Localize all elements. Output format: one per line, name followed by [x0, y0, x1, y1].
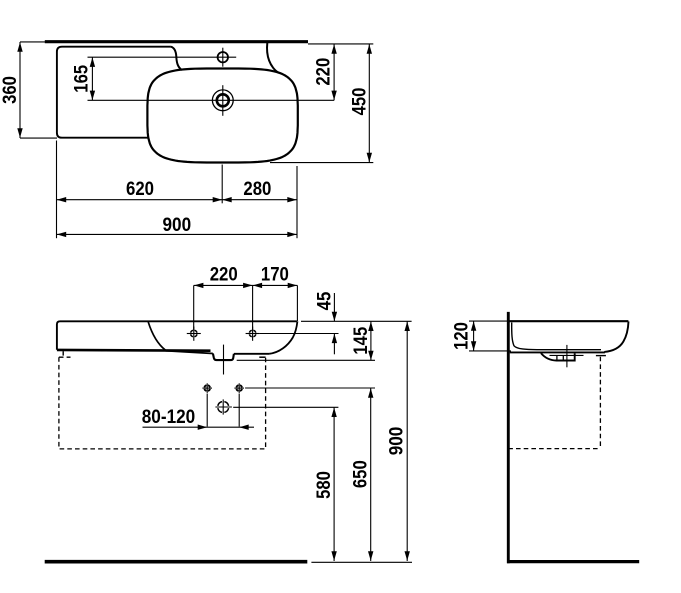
svg-text:900: 900	[386, 427, 407, 456]
svg-text:220: 220	[314, 58, 335, 86]
svg-text:45: 45	[314, 291, 335, 310]
svg-text:620: 620	[126, 179, 154, 200]
svg-text:145: 145	[351, 326, 372, 354]
svg-text:360: 360	[0, 76, 21, 104]
svg-text:170: 170	[261, 265, 289, 286]
svg-text:80-120: 80-120	[142, 407, 196, 428]
svg-text:280: 280	[243, 179, 271, 200]
svg-text:450: 450	[350, 88, 371, 116]
svg-text:650: 650	[351, 460, 372, 488]
svg-text:900: 900	[163, 215, 192, 236]
svg-text:165: 165	[71, 65, 92, 93]
svg-text:120: 120	[451, 322, 472, 350]
svg-text:580: 580	[314, 471, 335, 499]
svg-text:220: 220	[210, 265, 238, 286]
